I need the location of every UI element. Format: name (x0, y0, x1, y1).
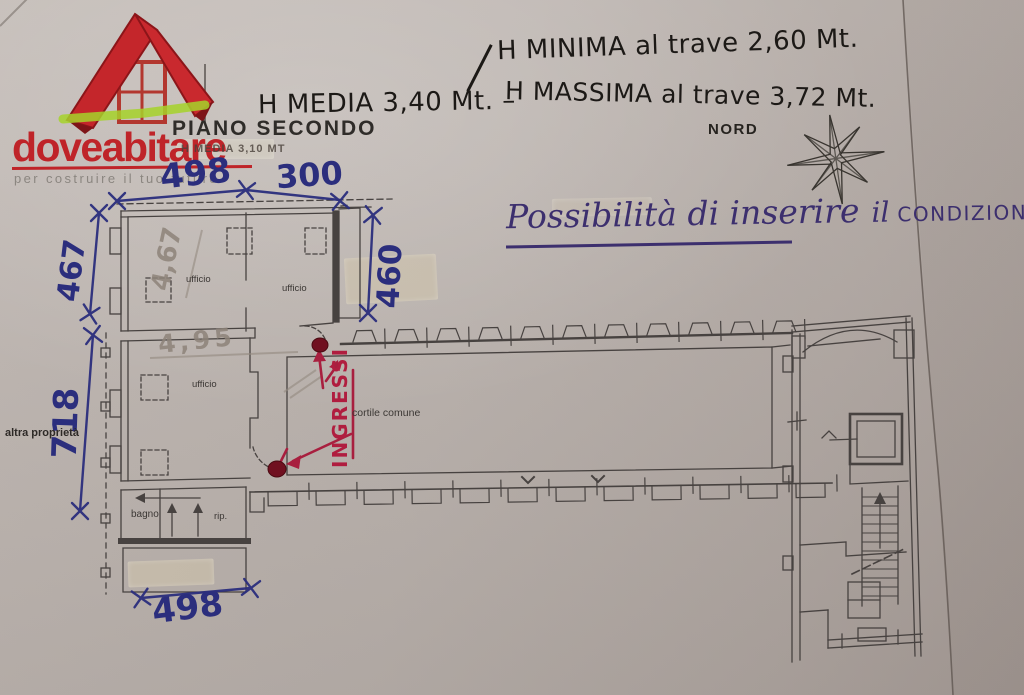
dim-top-right: 300 (275, 154, 344, 197)
dim-top-left: 498 (158, 150, 233, 197)
note-h-media: H MEDIA 3,40 Mt. – (258, 86, 516, 120)
room-storage: rip. (214, 511, 227, 522)
note-ingressi: INGRESSI (328, 372, 352, 468)
label-neighbor-property: altra proprietà (5, 427, 79, 439)
floor-title: PIANO SECONDO (172, 117, 377, 141)
room-courtyard: cortile comune (352, 407, 420, 419)
note-possibilita-article: il (871, 196, 889, 229)
floor-plan-photo: doveabitare per costruire il tuo futuro … (0, 0, 1024, 695)
room-office-top-right: ufficio (282, 283, 307, 294)
note-possibilita-caps: CONDIZIONATORE. (897, 199, 1024, 227)
room-office-middle: ufficio (192, 379, 217, 390)
room-office-top-left: ufficio (186, 274, 211, 285)
room-bathroom: bagno (131, 509, 159, 520)
north-label: NORD (708, 121, 758, 138)
dim-lower-left-side: 718 (45, 382, 88, 463)
dim-upper-right-side: 460 (370, 235, 410, 317)
note-possibilita-script: Possibilità di inserire (506, 191, 860, 236)
